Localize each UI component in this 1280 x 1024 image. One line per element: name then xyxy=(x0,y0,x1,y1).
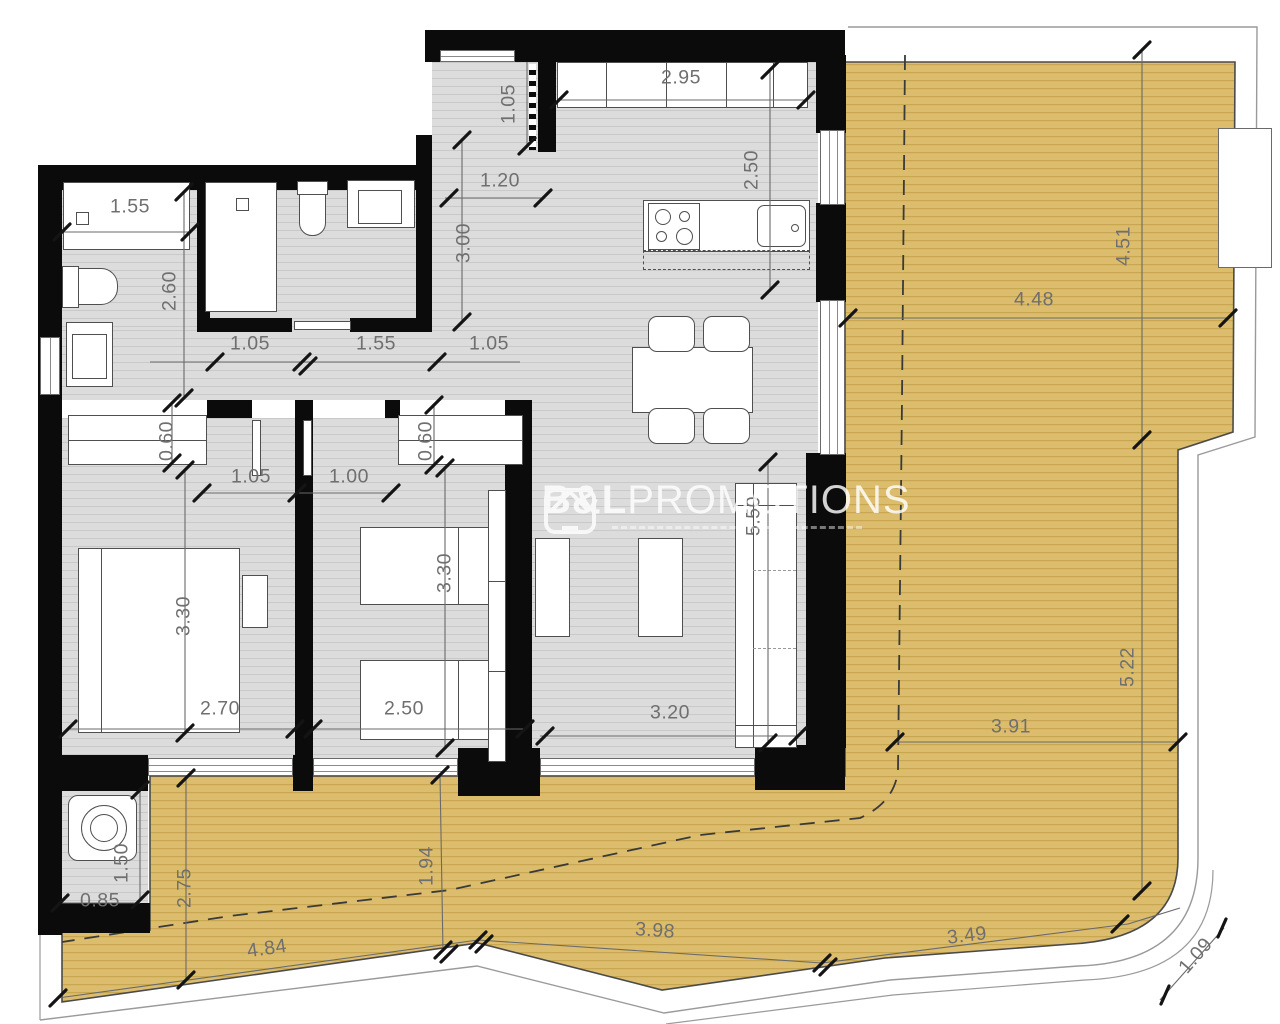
kitchen-sink-icon xyxy=(757,205,806,247)
closet-handle-icon xyxy=(76,212,89,225)
sliding-door-icon xyxy=(820,300,845,455)
corridor-floor xyxy=(62,330,540,400)
chair-icon xyxy=(648,408,695,444)
door-leaf-icon xyxy=(252,420,261,476)
window-icon xyxy=(820,130,845,205)
wall xyxy=(200,318,292,332)
closet-icon xyxy=(488,490,506,762)
single-bed-icon xyxy=(360,527,492,605)
wall xyxy=(416,135,432,332)
wall xyxy=(816,203,846,302)
wall xyxy=(350,318,432,332)
sofa-icon xyxy=(735,483,797,748)
chair-icon xyxy=(703,408,750,444)
toilet-icon xyxy=(299,194,326,236)
wardrobe-icon xyxy=(68,415,207,465)
washbasin-bowl-icon xyxy=(72,334,107,379)
kitchen-cabinets-icon xyxy=(557,62,808,108)
nightstand-icon xyxy=(242,575,268,628)
washing-machine-icon xyxy=(68,795,137,861)
wall xyxy=(538,62,556,152)
chair-icon xyxy=(648,316,695,352)
wall xyxy=(293,755,313,791)
toilet-tank-icon xyxy=(297,181,328,195)
wall xyxy=(38,165,62,935)
stove-icon xyxy=(648,203,700,250)
dining-table-icon xyxy=(632,347,753,413)
window-icon xyxy=(440,50,515,62)
wall xyxy=(38,755,148,791)
door-leaf-icon xyxy=(303,420,312,476)
washbasin-bowl-icon xyxy=(358,190,402,224)
planter-icon xyxy=(1218,128,1272,268)
wall xyxy=(806,453,846,748)
wall xyxy=(38,903,150,933)
entry-threshold-dots-icon xyxy=(529,64,536,150)
shower-drain-icon xyxy=(236,198,249,211)
wardrobe-icon xyxy=(398,415,523,465)
single-bed-icon xyxy=(360,660,492,740)
tv-unit-icon xyxy=(535,538,570,637)
window-icon xyxy=(40,337,60,395)
toilet-tank-icon xyxy=(62,266,79,308)
sliding-door-icon xyxy=(540,758,755,776)
floor-plan: 1.552.601.051.551.051.201.052.952.503.00… xyxy=(0,0,1280,1024)
toilet-icon xyxy=(78,268,118,305)
double-bed-icon xyxy=(78,548,240,733)
chair-icon xyxy=(703,316,750,352)
wall xyxy=(207,400,252,418)
sliding-door-icon xyxy=(313,758,458,776)
door-leaf-icon xyxy=(294,321,351,330)
coffee-table-icon xyxy=(638,538,683,637)
kitchen-counter-open-icon xyxy=(643,250,810,270)
wall xyxy=(755,745,845,790)
sliding-door-icon xyxy=(148,758,293,776)
wall xyxy=(816,55,846,133)
